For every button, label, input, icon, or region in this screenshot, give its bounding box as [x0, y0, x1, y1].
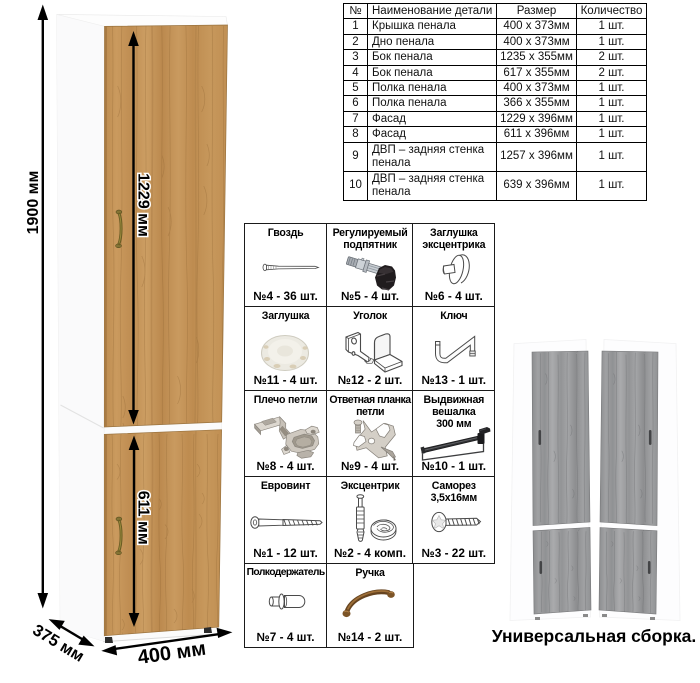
svg-text:400 мм: 400 мм	[136, 638, 207, 669]
svg-text:611 мм: 611 мм	[134, 491, 151, 545]
svg-text:1900 мм: 1900 мм	[25, 171, 42, 235]
svg-text:1229 мм: 1229 мм	[134, 173, 151, 237]
